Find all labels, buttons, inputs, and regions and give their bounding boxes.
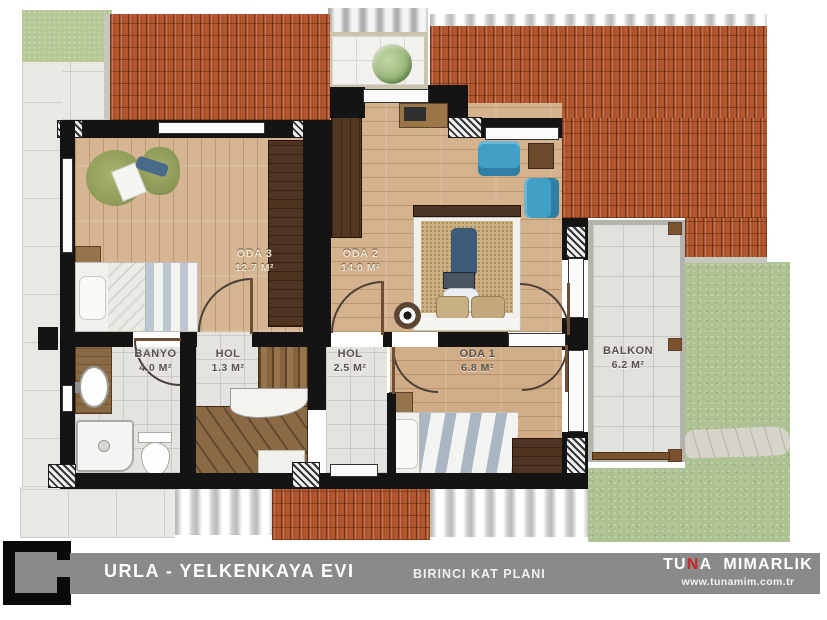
laptop-on-desk: [404, 107, 426, 121]
side-table: [528, 143, 554, 169]
room-name: HOL: [188, 348, 268, 362]
brand-block: TUNAMIMARLIK www.tunamim.com.tr: [648, 556, 827, 588]
balcony-rail: [592, 452, 670, 460]
bed-oda1-duvet: [419, 413, 518, 475]
brand-post: A: [700, 556, 713, 573]
roof-top-right-b: [562, 118, 767, 218]
floor-plan-canvas: ODA 3 12.7 M² ODA 2 14.0 M² ODA 1 6.8 M²…: [0, 0, 827, 620]
shower-drain: [98, 440, 110, 452]
door-leaf-oda3: [250, 278, 253, 334]
window-oda3-top: [158, 122, 265, 134]
room-name: ODA 3: [212, 248, 297, 262]
plan-label: BIRINCI KAT PLANI: [413, 567, 546, 581]
room-area: 12.7 M²: [212, 262, 297, 275]
bed-oda2-foot-sheet: [415, 318, 519, 330]
exterior-column: [38, 327, 58, 350]
wall-mid-e: [438, 332, 508, 347]
chair-blue-right: [524, 178, 559, 218]
round-speaker: [394, 302, 421, 329]
wall-mid-a: [60, 332, 133, 347]
pillar-right-top: [566, 226, 586, 258]
room-area: 1.3 M²: [188, 362, 268, 375]
bed-oda3-pillow: [79, 276, 106, 320]
bed-oda3-duvet-stripes: [145, 263, 198, 331]
balcony-door-oda1: [568, 350, 584, 432]
window-oda2-court: [363, 89, 429, 103]
room-area: 14.0 M²: [318, 262, 403, 275]
room-label-hol1: HOL 1.3 M²: [188, 348, 268, 375]
door-arc-oda2-right: [520, 283, 570, 333]
roof-bottom: [272, 485, 430, 540]
door-leaf-oda1-balcony: [565, 345, 568, 392]
wall-oda3-oda2: [303, 120, 331, 347]
grass-patch-top-left: [22, 10, 112, 62]
window-hol2-bottom: [330, 464, 378, 477]
room-area: 2.5 M²: [310, 362, 390, 375]
roof-top-right-c: [685, 218, 767, 258]
room-name: BANYO: [113, 348, 198, 362]
pillar-bottom-left: [48, 464, 76, 488]
room-label-oda3: ODA 3 12.7 M²: [212, 248, 297, 275]
room-name: HOL: [310, 348, 390, 362]
room-name: ODA 2: [318, 248, 403, 262]
room-label-balkon: BALKON 6.2 M²: [583, 345, 673, 372]
window-oda2-topright: [485, 127, 559, 140]
tree-icon: [372, 44, 412, 84]
pillar-oda2-top: [448, 117, 482, 138]
brand-accent-letter: N: [687, 556, 700, 573]
room-label-hol2: HOL 2.5 M²: [310, 348, 390, 375]
brand-pre: TU: [663, 556, 687, 573]
brand-word2: MIMARLIK: [723, 556, 813, 573]
room-label-banyo: BANYO 4.0 M²: [113, 348, 198, 375]
door-leaf-oda2: [381, 281, 384, 335]
roof-top-left: [110, 14, 330, 120]
room-area: 6.2 M²: [583, 359, 673, 372]
room-label-oda1: ODA 1 6.8 M²: [435, 348, 520, 375]
bed-oda3-duvet: [108, 263, 145, 331]
wall-mid-d: [383, 332, 392, 347]
person-on-bed-legs: [451, 228, 477, 276]
firm-logo-inner: [15, 552, 57, 593]
chair-blue-top: [478, 141, 520, 176]
room-area: 6.8 M²: [435, 362, 520, 375]
bed-oda2-pillow-left: [436, 296, 469, 319]
brand-name: TUNAMIMARLIK: [648, 556, 827, 574]
sink: [79, 366, 109, 408]
wall-hol2-oda1: [387, 393, 396, 473]
dresser-oda1: [512, 438, 566, 476]
pillar-right-bottom: [566, 437, 586, 477]
wardrobe-oda3: [268, 140, 305, 327]
room-name: ODA 1: [435, 348, 520, 362]
door-leaf-oda2-right: [567, 283, 570, 335]
pavers-left-strip: [22, 62, 62, 487]
stone-path: [685, 426, 791, 459]
wall-bottom: [60, 473, 588, 489]
brand-website: www.tunamim.com.tr: [648, 576, 827, 588]
room-area: 4.0 M²: [113, 362, 198, 375]
balcony-post-bottom: [668, 449, 682, 462]
wardrobe-oda2: [331, 105, 362, 238]
door-leaf-oda1: [392, 347, 395, 394]
roof-edge-right: [685, 257, 767, 263]
laptop-icon: [443, 272, 475, 289]
room-name: BALKON: [583, 345, 673, 359]
grass-area-bottom-right: [588, 468, 790, 542]
bed-double-headboard: [413, 205, 521, 217]
bed-oda2-pillow-right: [471, 296, 505, 319]
door-leaf-banyo: [134, 338, 181, 341]
room-label-oda2: ODA 2 14.0 M²: [318, 248, 403, 275]
window-banyo-left: [62, 385, 73, 412]
balcony-post-top: [668, 222, 682, 235]
window-oda3-left: [62, 158, 73, 253]
balcony-door-oda2: [568, 258, 584, 318]
roof-ridge-caps-bottom-left: [175, 487, 272, 535]
pavers-bottom-left: [20, 487, 175, 538]
courtyard-steps: [328, 8, 428, 34]
wall-court-left: [330, 87, 365, 118]
wall-mid-b: [180, 332, 197, 347]
project-title: URLA - YELKENKAYA EVI: [104, 561, 355, 582]
pillar-bottom-mid: [292, 462, 320, 488]
roof-ridge-caps-bottom-right: [430, 488, 588, 537]
